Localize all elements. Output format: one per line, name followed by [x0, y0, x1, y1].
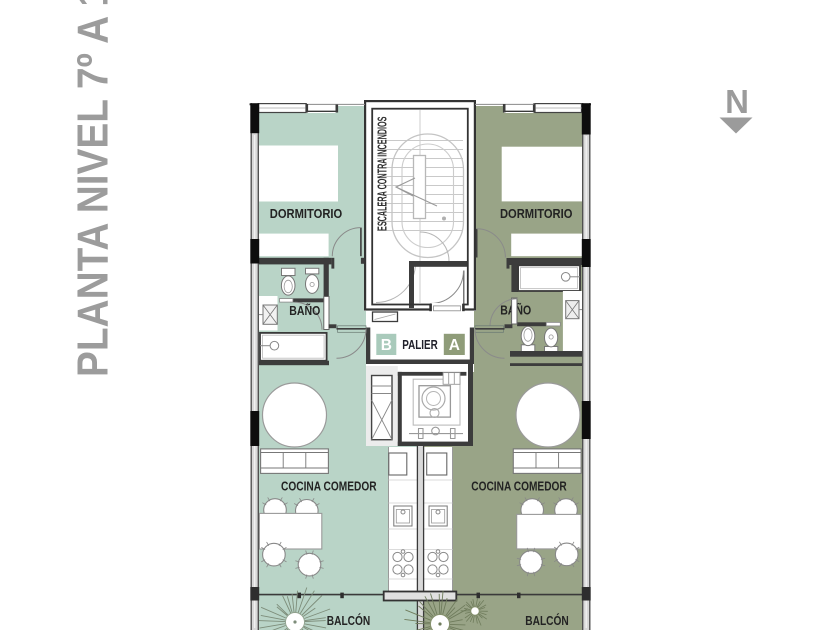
svg-text:BALCÓN: BALCÓN	[327, 613, 371, 628]
svg-text:B: B	[381, 337, 392, 354]
svg-text:COCINA COMEDOR: COCINA COMEDOR	[281, 479, 377, 494]
svg-text:ESCALERA CONTRA INCENDIOS: ESCALERA CONTRA INCENDIOS	[375, 116, 390, 231]
svg-text:DORMITORIO: DORMITORIO	[500, 206, 573, 221]
svg-text:N: N	[725, 83, 749, 120]
svg-text:A: A	[449, 337, 460, 354]
svg-text:PLANTA NIVEL 7º A 1: PLANTA NIVEL 7º A 1	[70, 0, 118, 377]
svg-text:COCINA COMEDOR: COCINA COMEDOR	[471, 479, 567, 494]
svg-text:PALIER: PALIER	[402, 337, 438, 352]
svg-text:BALCÓN: BALCÓN	[525, 613, 569, 628]
svg-text:DORMITORIO: DORMITORIO	[270, 206, 343, 221]
svg-text:BAÑO: BAÑO	[289, 303, 320, 318]
